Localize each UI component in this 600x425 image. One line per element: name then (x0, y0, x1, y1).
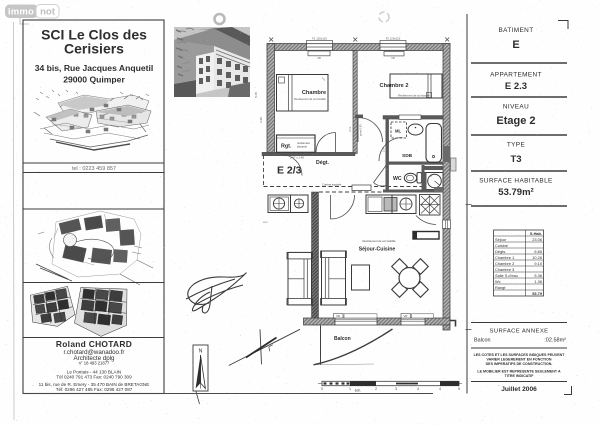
svg-text:2.95: 2.95 (259, 117, 263, 123)
svg-text:5.15: 5.15 (254, 92, 258, 98)
